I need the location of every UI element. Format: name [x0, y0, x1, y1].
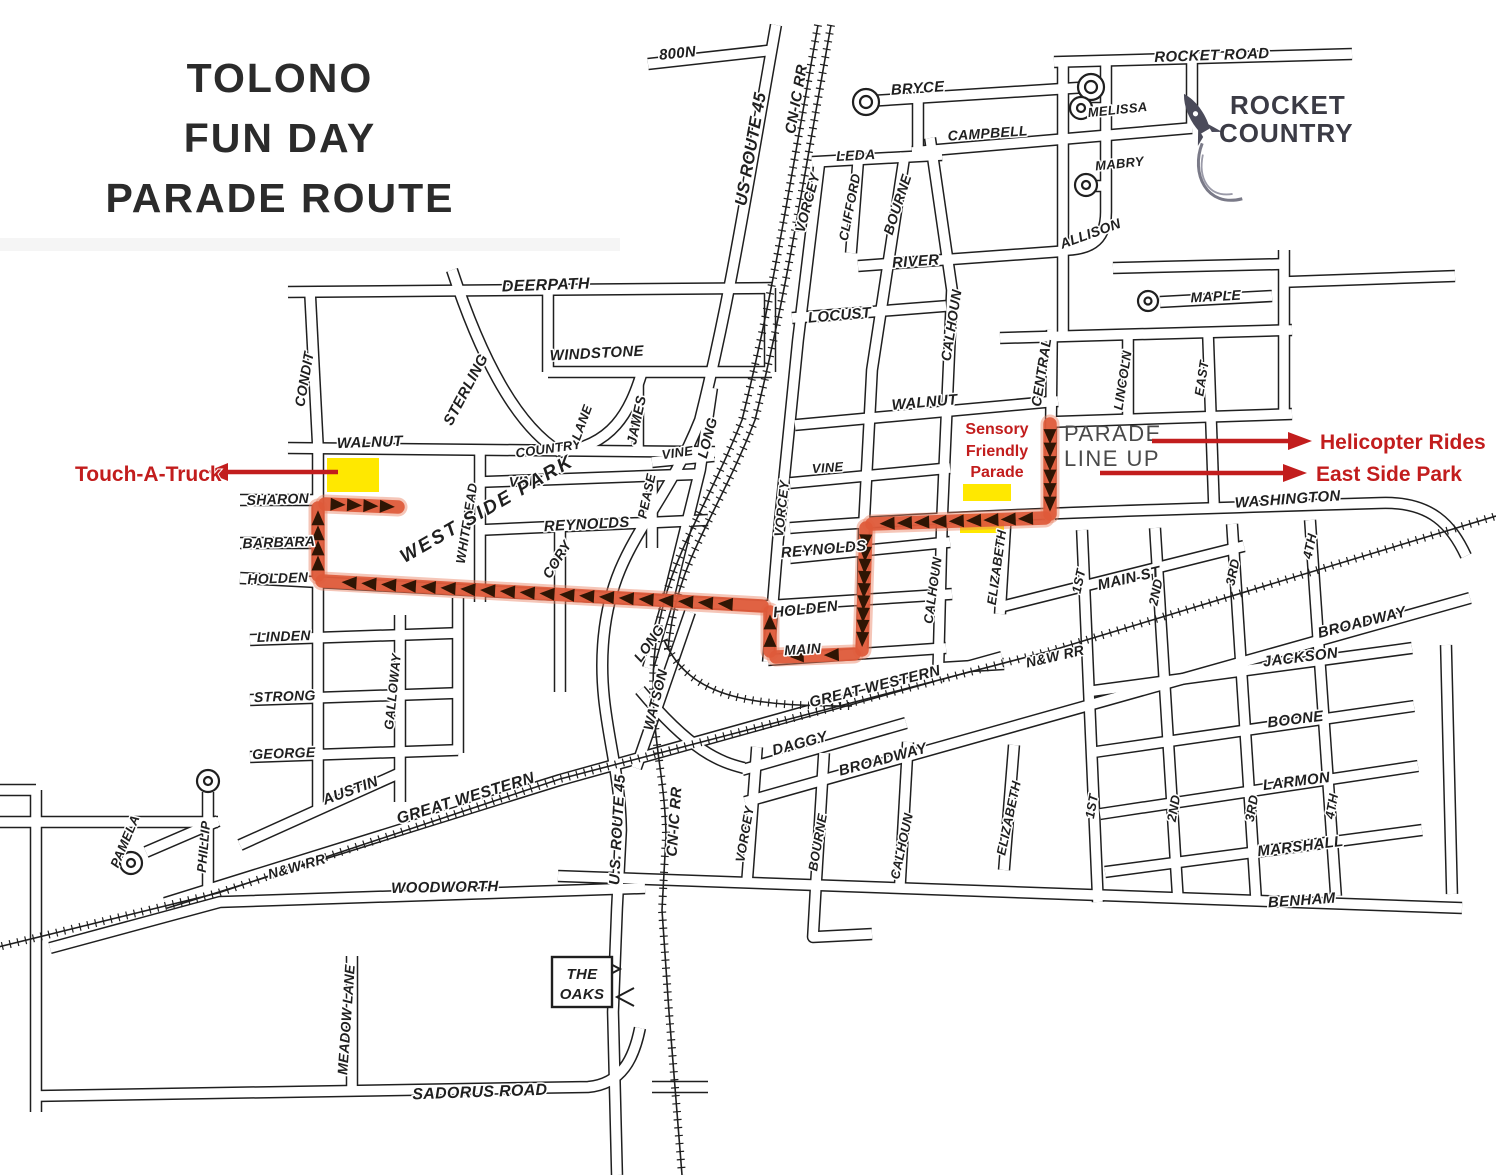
east-side-park-label: East Side Park	[1316, 463, 1462, 486]
title-line1: TOLONO	[187, 55, 374, 101]
street-label: DEERPATH	[502, 275, 591, 295]
street-label: CALHOUN	[887, 811, 916, 880]
parade-route-map-page: 800NUS ROUTE 45CN-IC RRBRYCECAMPBELLLEDA…	[0, 0, 1496, 1175]
street-label: CN-IC RR	[782, 63, 811, 135]
street-label: SADORUS ROAD	[412, 1082, 548, 1104]
street-label: RIVER	[891, 251, 939, 271]
street-label: U.S. ROUTE 45	[606, 774, 629, 886]
annotation-touch-a-truck: Touch-A-Truck	[75, 463, 338, 486]
street-label: LEDA	[836, 146, 876, 164]
street-label: WEST SIDE PARK	[397, 451, 578, 568]
street-label: BARBARA	[242, 533, 315, 552]
street-label: US ROUTE 45	[731, 91, 770, 208]
street-label: GREAT WESTERN	[808, 662, 943, 711]
street-label: GEORGE	[252, 744, 316, 762]
street-label: STRONG	[254, 687, 316, 705]
street-label: CN-IC RR	[664, 786, 686, 857]
scan-smudge	[0, 238, 620, 251]
street-label: LOCUST	[807, 304, 873, 327]
street-label: COUNTRY	[515, 436, 584, 460]
street-label: 4TH	[1322, 792, 1341, 821]
street-label: SHARON	[246, 490, 310, 508]
street-label: AUSTIN	[320, 773, 382, 809]
street-label: WALNUT	[337, 433, 405, 452]
street-label: VINE	[811, 459, 844, 476]
street-label: BOURNE	[805, 812, 830, 872]
helicopter-arrow-icon	[1288, 432, 1312, 450]
street-label: BOONE	[1266, 708, 1325, 732]
street-label: WOODWORTH	[391, 878, 500, 897]
sensory-line1: Sensory	[965, 421, 1028, 438]
logo-line2: COUNTRY	[1219, 118, 1354, 148]
title-line3: PARADE ROUTE	[106, 175, 455, 221]
street-label: LINDEN	[257, 627, 312, 645]
annotation-sensory-friendly-parade: Sensory Friendly Parade	[965, 421, 1028, 481]
map-title: TOLONO FUN DAY PARADE ROUTE	[106, 55, 455, 221]
street-label: BROADWAY	[1316, 603, 1410, 642]
title-line2: FUN DAY	[184, 115, 376, 161]
street-label: REYNOLDS	[544, 514, 631, 535]
street-label: MAPLE	[1190, 287, 1242, 306]
touch-a-truck-area	[327, 458, 379, 492]
street-label: WINDSTONE	[549, 343, 645, 365]
street-label: N&W RR	[266, 850, 328, 882]
street-label: BOURNE	[880, 172, 915, 237]
east-side-park-arrow-icon	[1283, 464, 1307, 482]
street-label: BROADWAY	[837, 739, 930, 779]
the-oaks-line2: OAKS	[560, 986, 605, 1003]
the-oaks-line1: THE	[567, 966, 599, 983]
sensory-line3: Parade	[970, 464, 1023, 481]
map-canvas: 800NUS ROUTE 45CN-IC RRBRYCECAMPBELLLEDA…	[0, 0, 1496, 1175]
street-label: ELIZABETH	[993, 779, 1023, 856]
rocket-country-logo: ROCKET COUNTRY	[1159, 87, 1353, 212]
touch-a-truck-label: Touch-A-Truck	[75, 463, 222, 486]
street-label: LANE	[568, 403, 595, 443]
parade-line-up-line2: LINE UP	[1064, 446, 1160, 471]
annotation-helicopter-rides: Helicopter Rides	[1152, 431, 1486, 454]
street-label: CALHOUN	[938, 288, 965, 362]
the-oaks-box: THE OAKS	[552, 957, 612, 1007]
street-label: STERLING	[440, 351, 492, 428]
parade-line-up-label: PARADE LINE UP	[1064, 421, 1162, 471]
sensory-parade-area-north	[963, 484, 1011, 501]
street-label: HOLDEN	[247, 569, 309, 587]
street-label: MAIN	[784, 640, 823, 659]
logo-line1: ROCKET	[1230, 90, 1346, 120]
helicopter-rides-label: Helicopter Rides	[1320, 431, 1486, 454]
street-label: VORCEY	[771, 479, 792, 538]
parade-line-up-line1: PARADE	[1064, 421, 1162, 446]
sensory-line2: Friendly	[966, 443, 1028, 460]
